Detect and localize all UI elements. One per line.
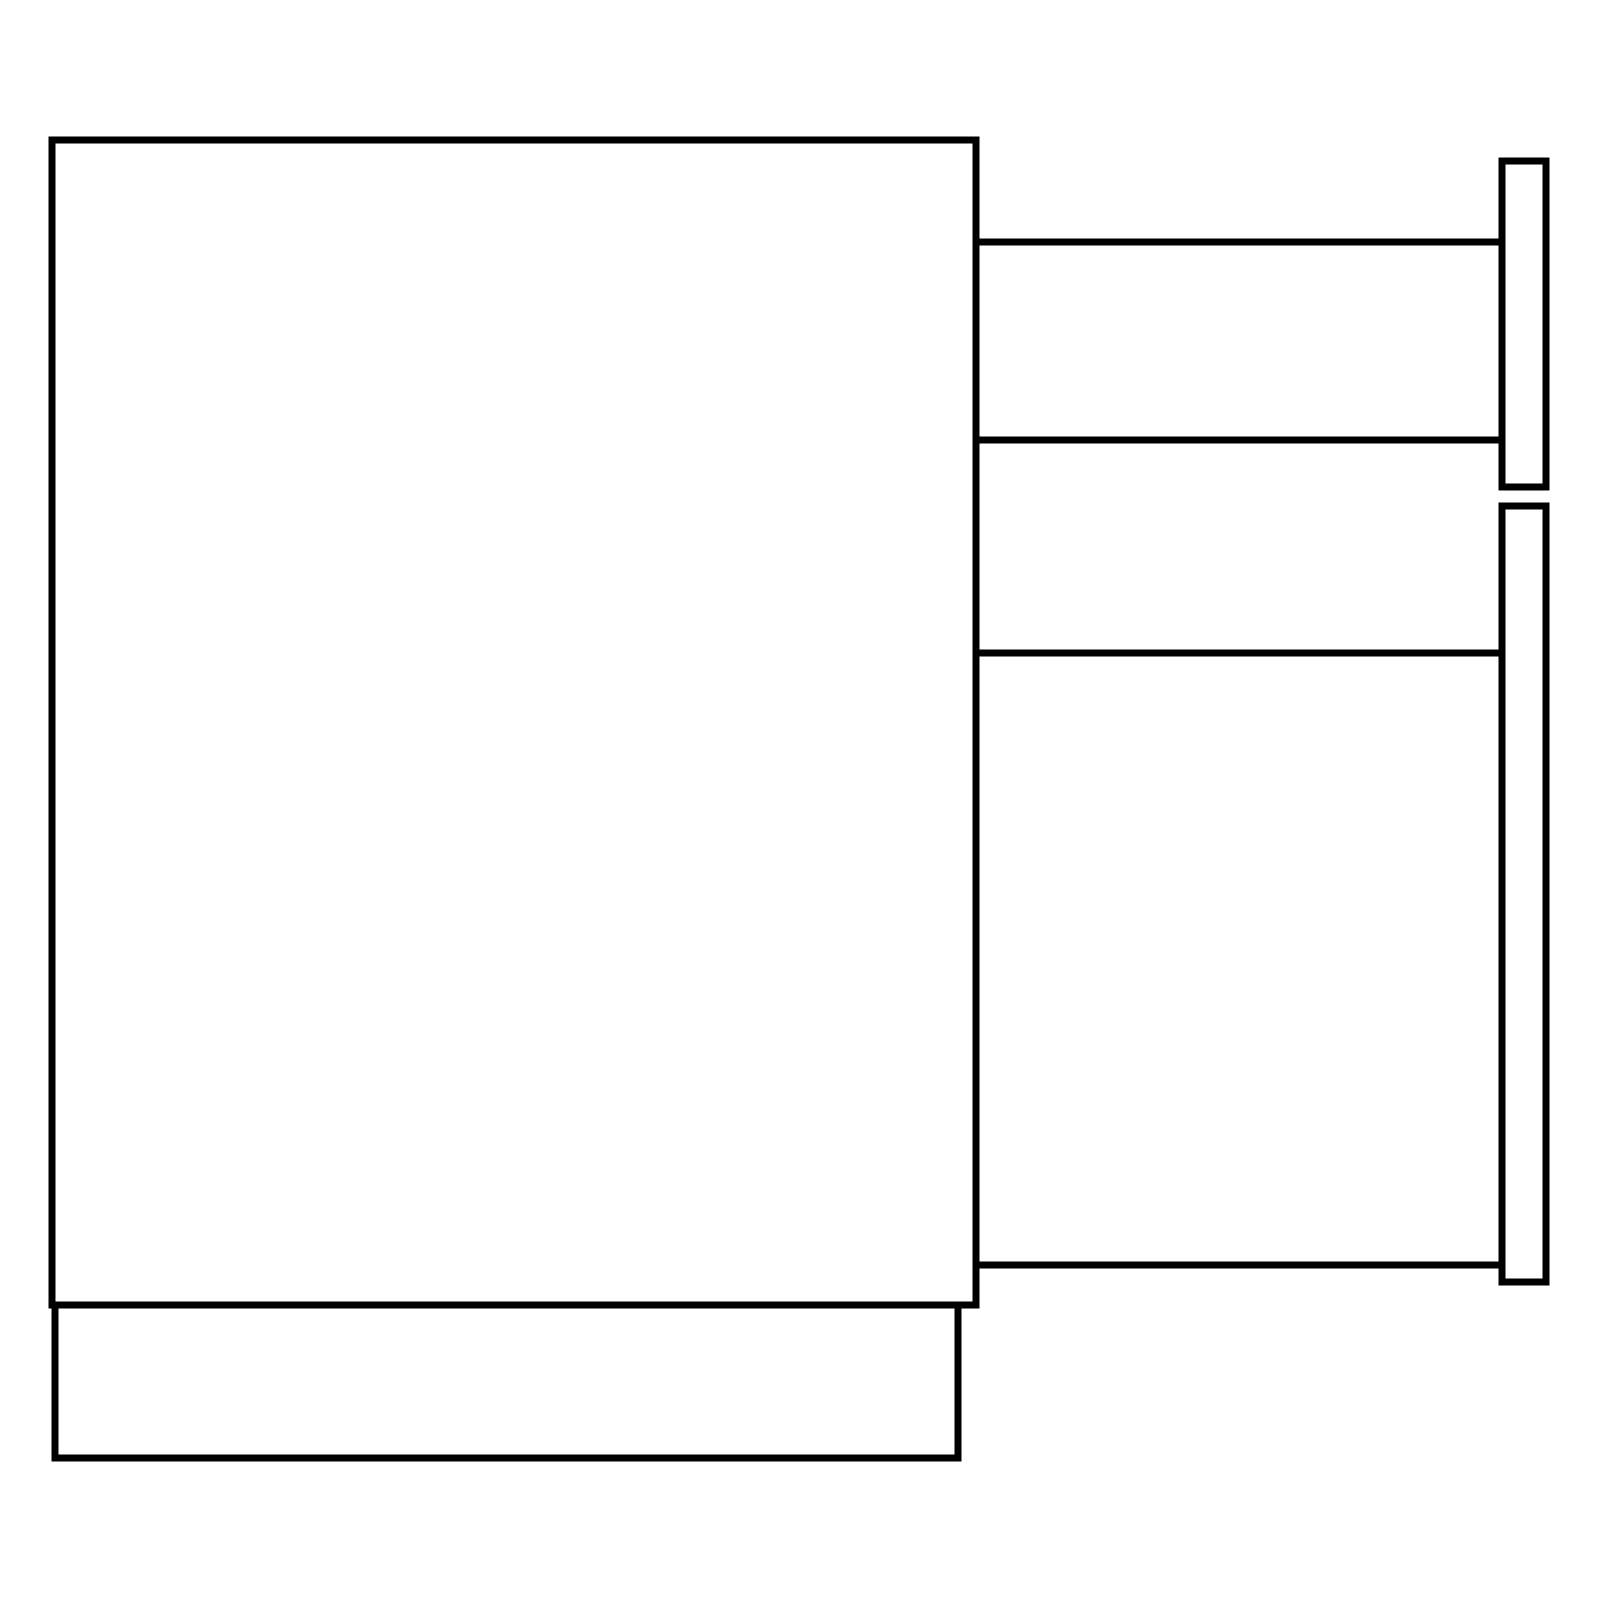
drawer1-front-panel xyxy=(1502,161,1546,487)
diagram-canvas xyxy=(0,0,1600,1600)
cabinet-body-outline xyxy=(52,140,976,1305)
diagram-page xyxy=(0,0,1600,1600)
cabinet-base-outline xyxy=(55,1305,958,1458)
drawer2-front-panel xyxy=(1502,506,1546,1282)
